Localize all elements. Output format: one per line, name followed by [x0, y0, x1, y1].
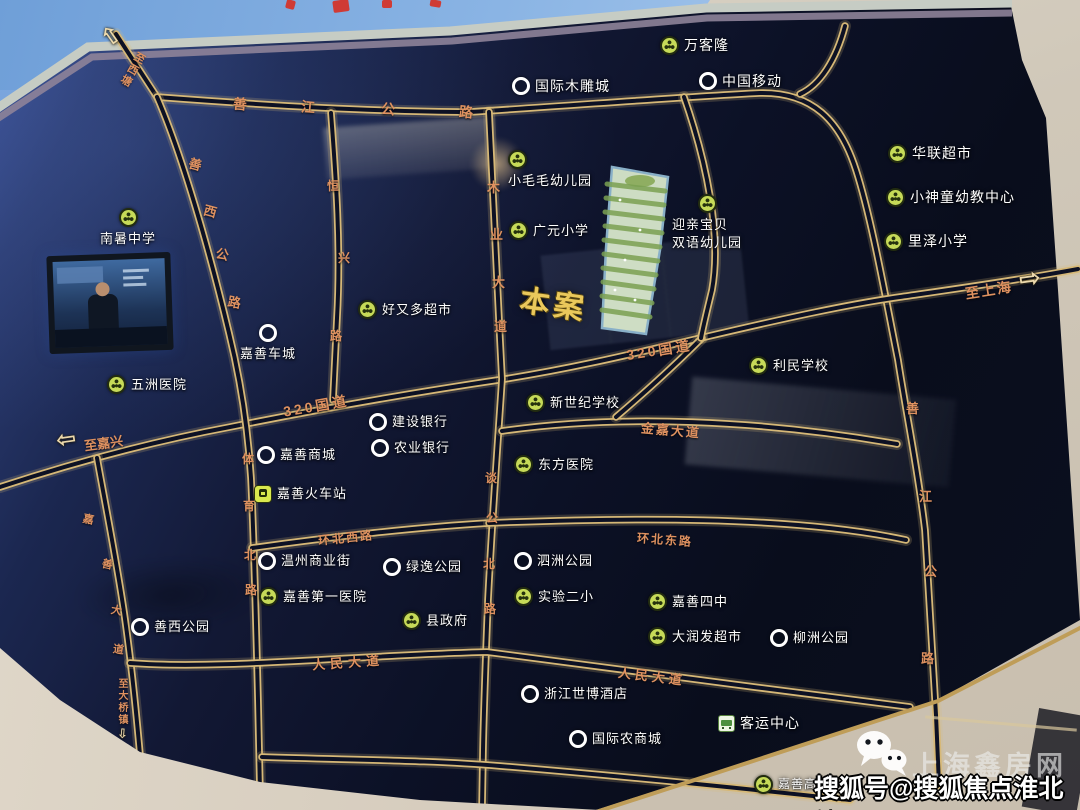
- road-label-char-15: 道: [494, 316, 507, 335]
- road-label-char-10: 兴: [338, 249, 350, 266]
- project-site-marker[interactable]: 本案: [517, 275, 590, 328]
- ring-poi-icon: [383, 558, 401, 576]
- poi-nanshu-zhongxue[interactable]: 南暑中学: [100, 208, 156, 248]
- road-label-char-8: 路: [226, 291, 242, 312]
- poi-label: 县政府: [426, 612, 468, 630]
- green-poi-icon: [754, 775, 773, 794]
- poi-label: 广元小学: [533, 222, 589, 240]
- poi-label: 建设银行: [392, 413, 448, 431]
- poi-label: 温州商业街: [281, 552, 351, 570]
- poi-jiashan-huochezhan[interactable]: 嘉善火车站: [254, 485, 347, 503]
- poi-label: 万客隆: [684, 36, 729, 55]
- road-label-char-38: 善: [100, 555, 114, 573]
- poi-label: 迎亲宝贝 双语幼儿园: [672, 216, 742, 251]
- poi-wankelong[interactable]: 万客隆: [660, 36, 729, 55]
- poi-liuzhou-gongyuan[interactable]: 柳洲公园: [770, 629, 849, 647]
- poi-zhejiang-shibo-jiudian[interactable]: 浙江世博酒店: [521, 685, 628, 703]
- poi-limin-xuexiao[interactable]: 利民学校: [749, 356, 829, 375]
- green-poi-icon: [119, 208, 138, 227]
- poi-lize-xiaoxue[interactable]: 里泽小学: [884, 232, 968, 251]
- poi-label: 泗洲公园: [537, 552, 593, 570]
- poi-label: 客运中心: [740, 714, 800, 733]
- arrow-to-shanghai: ⇨: [1017, 265, 1042, 294]
- poi-jiashan-shangcheng[interactable]: 嘉善商城: [257, 446, 336, 464]
- road-label-char-2: 江: [300, 96, 316, 117]
- poi-darunfa-chaoshi[interactable]: 大润发超市: [648, 627, 742, 646]
- road-label-char-12: 木: [487, 177, 500, 196]
- road-label-char-24: 路: [245, 581, 257, 598]
- green-poi-icon: [648, 627, 667, 646]
- poi-label: 五洲医院: [131, 376, 187, 394]
- road-label-char-40: 道: [112, 640, 125, 657]
- poi-jiashan-sizhong[interactable]: 嘉善四中: [648, 592, 728, 611]
- photo-of-map-board: { "watermark": { "publisher": "上海鑫房网", "…: [0, 0, 1080, 810]
- poi-guoji-mudiaocheng[interactable]: 国际木雕城: [512, 77, 610, 96]
- road-label-to-jiaxing: 至嘉兴: [83, 430, 124, 454]
- poi-shiyan-erxiao[interactable]: 实验二小: [514, 587, 594, 606]
- poi-dongfang-yiyuan[interactable]: 东方医院: [514, 455, 594, 474]
- poi-label: 国际木雕城: [535, 77, 610, 96]
- road-label-char-7: 公: [214, 243, 231, 264]
- road-label-char-4: 路: [458, 101, 474, 122]
- poi-jiashan-gaotiezhan[interactable]: 嘉善高铁站: [754, 775, 843, 794]
- arrow-to-xitang: ⇧: [96, 20, 126, 51]
- poi-label: 华联超市: [912, 144, 972, 163]
- poi-label: 小毛毛幼儿园: [508, 172, 592, 190]
- road-label-char-36: 路: [921, 648, 934, 667]
- ring-poi-icon: [569, 730, 587, 748]
- road-label-to-shanghai: 至上海: [964, 276, 1015, 303]
- green-poi-icon: [648, 592, 667, 611]
- poi-label: 农业银行: [394, 439, 450, 457]
- road-label-to-xitang: 至西塘: [115, 49, 148, 91]
- green-poi-icon: [526, 393, 545, 412]
- ring-poi-icon: [770, 629, 788, 647]
- green-poi-icon: [749, 356, 768, 375]
- poi-xian-zhengfu[interactable]: 县政府: [402, 611, 468, 630]
- arrow-to-jiaxing: ⇦: [54, 426, 77, 453]
- poi-label: 利民学校: [773, 357, 829, 375]
- ring-poi-icon: [514, 552, 532, 570]
- poi-xiaomaomao-youeryuan[interactable]: 小毛毛幼儿园: [508, 150, 592, 190]
- road-label-char-28: 路: [484, 600, 496, 617]
- poi-label: 嘉善车城: [240, 345, 296, 363]
- poi-label: 善西公园: [154, 618, 210, 636]
- ring-poi-icon: [371, 439, 389, 457]
- green-poi-icon: [508, 150, 527, 169]
- road-label-char-3: 公: [380, 98, 396, 119]
- poi-label: 柳洲公园: [793, 629, 849, 647]
- green-poi-icon: [698, 194, 717, 213]
- poi-guangyuan-xiaoxue[interactable]: 广元小学: [509, 221, 589, 240]
- poi-label: 嘉善火车站: [277, 485, 347, 503]
- road-label-char-34: 江: [919, 486, 932, 505]
- ring-poi-icon: [258, 552, 276, 570]
- road-label-char-5: 善: [187, 153, 204, 175]
- ring-poi-icon: [699, 72, 717, 90]
- green-poi-icon: [888, 144, 907, 163]
- poi-lvyi-gongyuan[interactable]: 绿逸公园: [383, 558, 462, 576]
- poi-jiashan-checheng[interactable]: 嘉善车城: [240, 324, 296, 363]
- poi-keyun-zhongxin[interactable]: 客运中心: [718, 714, 800, 733]
- train-poi-icon: [254, 485, 272, 503]
- poi-label: 绿逸公园: [406, 558, 462, 576]
- poi-xinshiji-xuexiao[interactable]: 新世纪学校: [526, 393, 620, 412]
- green-poi-icon: [402, 611, 421, 630]
- poi-label: 大润发超市: [672, 628, 742, 646]
- poi-nongye-yinhang[interactable]: 农业银行: [371, 439, 450, 457]
- road-label-char-13: 业: [490, 224, 503, 243]
- ring-poi-icon: [521, 685, 539, 703]
- road-label-to-daqiao-town: 至大桥镇: [114, 678, 129, 726]
- poi-label: 里泽小学: [908, 232, 968, 251]
- road-label-char-35: 公: [924, 561, 937, 580]
- road-label-char-9: 恒: [327, 177, 339, 194]
- road-label-char-1: 善: [232, 93, 248, 114]
- poi-wuzhou-yiyuan[interactable]: 五洲医院: [107, 375, 187, 394]
- road-label-jinjia-avenue: 金嘉大道: [640, 417, 701, 441]
- poi-label: 实验二小: [538, 588, 594, 606]
- road-label-char-39: 大: [110, 601, 124, 619]
- road-label-huanbei-west: 环北西路: [317, 526, 374, 549]
- poi-label: 南暑中学: [100, 230, 156, 248]
- poi-label: 东方医院: [538, 456, 594, 474]
- green-poi-icon: [259, 587, 278, 606]
- road-label-char-27: 北: [483, 555, 495, 572]
- road-label-char-14: 大: [492, 272, 505, 291]
- poi-label: 浙江世博酒店: [544, 685, 628, 703]
- road-label-char-26: 公: [486, 509, 498, 526]
- bus-poi-icon: [718, 715, 735, 732]
- ring-poi-icon: [512, 77, 530, 95]
- road-label-char-6: 西: [202, 200, 219, 222]
- road-label-char-37: 嘉: [81, 510, 95, 528]
- green-poi-icon: [886, 188, 905, 207]
- poi-label: 嘉善高铁站: [778, 776, 843, 792]
- road-label-char-25: 谈: [485, 469, 497, 486]
- poi-hualian-chaoshi[interactable]: 华联超市: [888, 144, 972, 163]
- green-poi-icon: [884, 232, 903, 251]
- poi-xiaoshentong-youjiao-zhongxin[interactable]: 小神童幼教中心: [886, 188, 1015, 207]
- poi-haoyouduo-chaoshi[interactable]: 好又多超市: [358, 300, 452, 319]
- poi-label: 中国移动: [722, 72, 782, 91]
- poi-wenzhou-shangyejie[interactable]: 温州商业街: [258, 552, 351, 570]
- poi-label: 小神童幼教中心: [910, 188, 1015, 207]
- green-poi-icon: [514, 587, 533, 606]
- poi-label: 嘉善第一医院: [283, 588, 367, 606]
- green-poi-icon: [358, 300, 377, 319]
- road-label-renmin-west: 人民大道: [311, 650, 384, 674]
- poi-jianshe-yinhang[interactable]: 建设银行: [369, 413, 448, 431]
- road-label-char-21: 体: [242, 450, 254, 467]
- road-label-320-west: 320国道: [282, 390, 351, 421]
- green-poi-icon: [509, 221, 528, 240]
- poi-label: 国际农商城: [592, 730, 662, 748]
- ring-poi-icon: [369, 413, 387, 431]
- ring-poi-icon: [131, 618, 149, 636]
- label-layer: 本案 至西塘善江公路善西公路恒兴路木业大道320国道320国道至嘉兴至上海金嘉大…: [0, 0, 1080, 810]
- green-poi-icon: [107, 375, 126, 394]
- poi-shanxi-gongyuan[interactable]: 善西公园: [131, 618, 210, 636]
- road-label-huanbei-east: 环北东路: [636, 529, 693, 550]
- ring-poi-icon: [259, 324, 277, 342]
- poi-jiashan-diyi-yiyuan[interactable]: 嘉善第一医院: [259, 587, 367, 606]
- poi-label: 嘉善四中: [672, 593, 728, 611]
- road-label-char-23: 北: [244, 546, 256, 563]
- green-poi-icon: [514, 455, 533, 474]
- ring-poi-icon: [257, 446, 275, 464]
- poi-label: 好又多超市: [382, 301, 452, 319]
- green-poi-icon: [660, 36, 679, 55]
- road-label-char-33: 善: [906, 398, 919, 417]
- poi-label: 新世纪学校: [550, 394, 620, 412]
- road-label-char-11: 路: [330, 327, 342, 344]
- poi-sizhou-gongyuan[interactable]: 泗洲公园: [514, 552, 593, 570]
- poi-guoji-nongshangcheng[interactable]: 国际农商城: [569, 730, 662, 748]
- poi-zhongguo-yidong[interactable]: 中国移动: [699, 72, 782, 91]
- poi-label: 嘉善商城: [280, 446, 336, 464]
- road-label-320-east: 320国道: [625, 335, 694, 365]
- poi-yingqin-baobei[interactable]: 迎亲宝贝 双语幼儿园: [672, 194, 742, 251]
